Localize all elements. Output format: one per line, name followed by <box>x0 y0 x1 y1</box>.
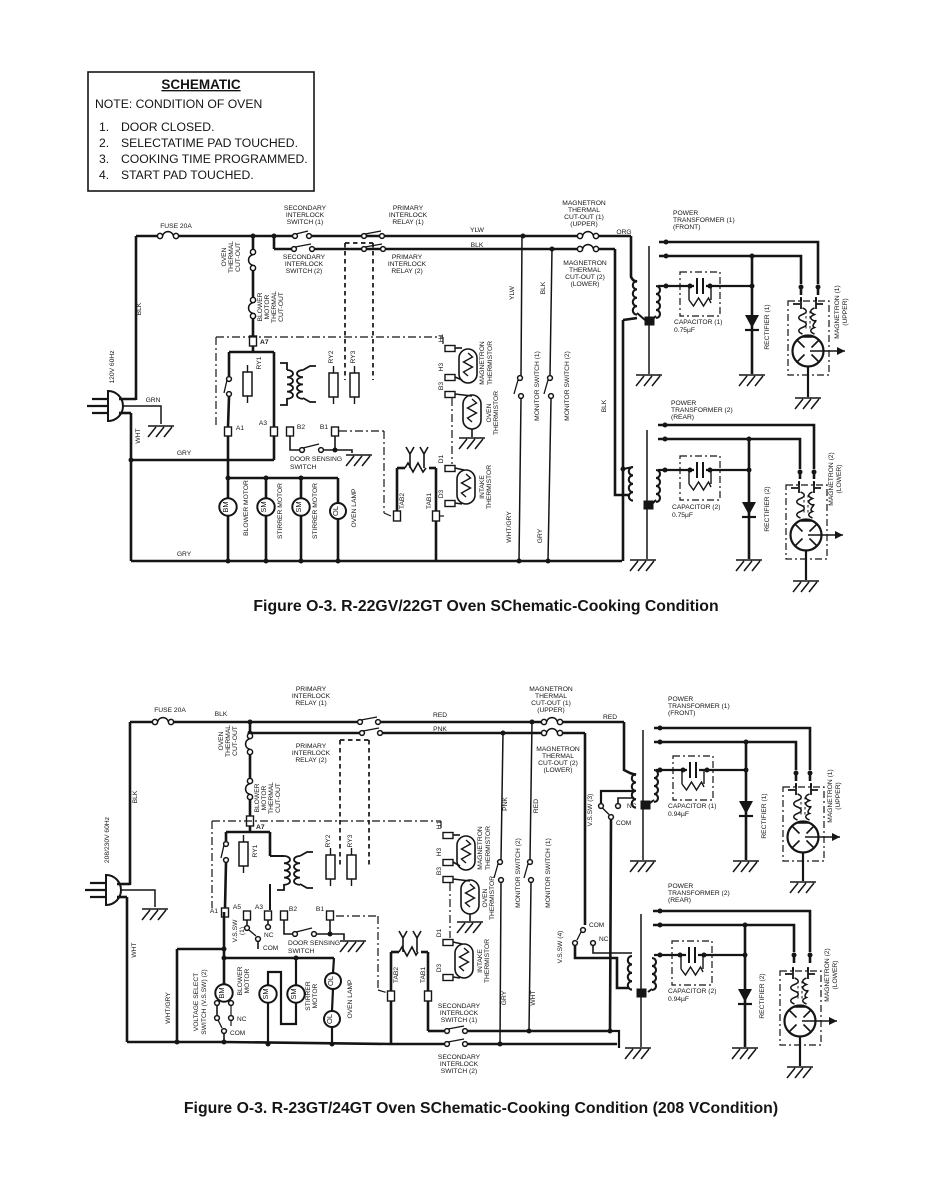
svg-text:DOOR SENSING: DOOR SENSING <box>288 940 340 947</box>
svg-text:THERMAL: THERMAL <box>271 291 278 323</box>
svg-text:SWITCH (1): SWITCH (1) <box>287 219 323 226</box>
svg-text:RED: RED <box>433 712 447 719</box>
svg-text:H3: H3 <box>438 362 445 371</box>
svg-text:BLK: BLK <box>132 790 139 803</box>
svg-text:THERMISTOR: THERMISTOR <box>484 939 491 983</box>
svg-text:H3: H3 <box>436 847 443 856</box>
svg-text:STIRRER MOTOR: STIRRER MOTOR <box>277 483 284 539</box>
svg-text:D1: D1 <box>438 454 445 463</box>
svg-text:B2: B2 <box>289 906 297 913</box>
svg-text:POWER: POWER <box>673 210 698 217</box>
svg-text:THERMAL: THERMAL <box>535 693 567 700</box>
svg-text:YLW: YLW <box>509 285 516 300</box>
svg-text:CUT-OUT (2): CUT-OUT (2) <box>565 274 605 281</box>
svg-text:SECONDARY: SECONDARY <box>284 205 327 212</box>
svg-text:YLW: YLW <box>470 227 485 234</box>
svg-text:CUT-OUT (1): CUT-OUT (1) <box>564 214 604 221</box>
svg-text:MAGNETRON: MAGNETRON <box>562 200 606 207</box>
svg-text:COM: COM <box>230 1030 245 1037</box>
svg-text:THERMAL: THERMAL <box>225 725 232 757</box>
svg-text:GRN: GRN <box>146 397 161 404</box>
svg-text:D3: D3 <box>436 963 443 972</box>
svg-text:THERMISTOR: THERMISTOR <box>485 826 492 870</box>
svg-text:(FRONT): (FRONT) <box>668 710 696 717</box>
svg-text:(LOWER): (LOWER) <box>571 281 600 288</box>
svg-text:SWITCH (2): SWITCH (2) <box>286 268 322 275</box>
svg-text:INTERLOCK: INTERLOCK <box>292 693 331 700</box>
svg-text:WHT: WHT <box>530 990 537 1005</box>
svg-text:MAGNETRON (2): MAGNETRON (2) <box>824 948 831 1002</box>
svg-text:SM: SM <box>294 501 303 512</box>
svg-text:PRIMARY: PRIMARY <box>393 205 424 212</box>
svg-text:BM: BM <box>217 987 226 998</box>
svg-text:0.75µF: 0.75µF <box>672 512 693 519</box>
svg-text:FUSE 20A: FUSE 20A <box>160 223 192 230</box>
svg-text:RY2: RY2 <box>328 350 335 363</box>
svg-text:GRY: GRY <box>177 450 192 457</box>
svg-text:B3: B3 <box>438 382 445 390</box>
svg-text:NC: NC <box>264 932 274 939</box>
svg-text:BLOWER MOTOR: BLOWER MOTOR <box>243 480 250 536</box>
svg-text:RECTIFIER (2): RECTIFIER (2) <box>764 486 771 531</box>
svg-text:GRY: GRY <box>177 551 192 558</box>
svg-text:(UPPER): (UPPER) <box>570 221 598 228</box>
svg-text:THERMAL: THERMAL <box>542 753 574 760</box>
svg-text:(1): (1) <box>239 927 246 935</box>
svg-text:120V 60Hz: 120V 60Hz <box>109 350 116 384</box>
svg-text:BLK: BLK <box>601 399 608 412</box>
svg-text:OVEN: OVEN <box>218 731 225 750</box>
svg-text:CUT-OUT: CUT-OUT <box>278 292 285 322</box>
svg-text:RED: RED <box>533 799 540 813</box>
svg-text:MOTOR: MOTOR <box>264 294 271 319</box>
svg-text:SWITCH (1): SWITCH (1) <box>441 1017 477 1024</box>
svg-text:2.: 2. <box>99 136 109 150</box>
svg-text:A5: A5 <box>233 904 241 911</box>
svg-text:SECONDARY: SECONDARY <box>283 254 326 261</box>
svg-text:THERMAL: THERMAL <box>268 782 275 814</box>
svg-text:(UPPER): (UPPER) <box>835 782 842 810</box>
svg-text:RY1: RY1 <box>256 356 263 369</box>
svg-text:THERMAL: THERMAL <box>569 267 601 274</box>
svg-text:INTERLOCK: INTERLOCK <box>389 212 428 219</box>
svg-text:NOTE: CONDITION OF OVEN: NOTE: CONDITION OF OVEN <box>95 97 262 111</box>
svg-text:SM: SM <box>259 501 268 512</box>
svg-text:A1: A1 <box>210 908 218 915</box>
svg-text:CUT-OUT: CUT-OUT <box>232 726 239 756</box>
svg-text:SM: SM <box>289 988 298 999</box>
svg-text:RECTIFIER (1): RECTIFIER (1) <box>761 793 768 838</box>
svg-text:OL: OL <box>325 1014 334 1024</box>
svg-text:THERMISTOR: THERMISTOR <box>486 465 493 509</box>
svg-text:OL: OL <box>331 506 340 516</box>
svg-text:THERMAL: THERMAL <box>228 241 235 273</box>
svg-text:STIRRER MOTOR: STIRRER MOTOR <box>312 483 319 539</box>
svg-text:MOTOR: MOTOR <box>312 983 319 1008</box>
svg-text:MOTOR: MOTOR <box>244 968 251 993</box>
svg-text:(UPPER): (UPPER) <box>842 298 849 326</box>
svg-text:TAB1: TAB1 <box>426 493 433 510</box>
svg-text:CUT-OUT (2): CUT-OUT (2) <box>538 760 578 767</box>
svg-text:MONITOR SWITCH (2): MONITOR SWITCH (2) <box>515 838 522 908</box>
svg-text:COM: COM <box>616 820 631 827</box>
svg-text:START PAD TOUCHED.: START PAD TOUCHED. <box>121 168 254 182</box>
svg-text:THERMAL: THERMAL <box>568 207 600 214</box>
svg-text:RED: RED <box>603 714 617 721</box>
svg-text:(REAR): (REAR) <box>668 897 691 904</box>
svg-text:COM: COM <box>589 922 604 929</box>
svg-text:SWITCH: SWITCH <box>288 948 315 955</box>
svg-text:INTERLOCK: INTERLOCK <box>286 212 325 219</box>
svg-text:PRIMARY: PRIMARY <box>392 254 423 261</box>
svg-text:D3: D3 <box>438 489 445 498</box>
svg-text:NC: NC <box>237 1016 247 1023</box>
svg-text:THERMISTOR: THERMISTOR <box>489 876 496 920</box>
svg-text:MAGNETRON (1): MAGNETRON (1) <box>834 285 841 339</box>
svg-text:B3: B3 <box>436 867 443 875</box>
svg-text:TAB1: TAB1 <box>420 967 427 984</box>
svg-text:Figure O-3. R-22GV/22GT Oven: Figure O-3. R-22GV/22GT Oven SChematic-C… <box>253 598 718 615</box>
svg-text:V.S.SW (3): V.S.SW (3) <box>587 794 594 827</box>
svg-text:INTAKE: INTAKE <box>479 475 486 499</box>
svg-text:WHT: WHT <box>135 428 142 443</box>
svg-text:BLOWER: BLOWER <box>257 292 264 321</box>
svg-text:BLK: BLK <box>540 281 547 294</box>
svg-text:4.: 4. <box>99 168 109 182</box>
svg-text:TRANSFORMER (2): TRANSFORMER (2) <box>671 407 733 414</box>
svg-text:B1: B1 <box>320 424 328 431</box>
svg-text:RECTIFIER (2): RECTIFIER (2) <box>759 973 766 1018</box>
svg-text:STIRRER: STIRRER <box>305 981 312 1011</box>
svg-text:V.S.SW: V.S.SW <box>232 919 239 942</box>
svg-text:BLK: BLK <box>136 302 143 315</box>
svg-text:PNK: PNK <box>433 726 447 733</box>
svg-text:208/230V 60Hz: 208/230V 60Hz <box>104 816 111 863</box>
svg-text:INTERLOCK: INTERLOCK <box>440 1010 479 1017</box>
svg-text:THERMISTOR: THERMISTOR <box>493 391 500 435</box>
svg-text:(LOWER): (LOWER) <box>836 465 843 494</box>
svg-text:MAGNETRON (2): MAGNETRON (2) <box>828 452 835 506</box>
svg-text:(FRONT): (FRONT) <box>673 224 701 231</box>
svg-text:MONITOR SWITCH (1): MONITOR SWITCH (1) <box>545 838 552 908</box>
svg-text:V.S.SW (4): V.S.SW (4) <box>557 931 564 964</box>
svg-text:A7: A7 <box>256 824 265 831</box>
svg-text:BLOWER: BLOWER <box>237 966 244 995</box>
svg-text:PRIMARY: PRIMARY <box>296 686 327 693</box>
svg-text:MOTOR: MOTOR <box>261 785 268 810</box>
svg-text:B2: B2 <box>297 424 305 431</box>
svg-text:COOKING TIME PROGRAMMED.: COOKING TIME PROGRAMMED. <box>121 152 308 166</box>
svg-text:INTERLOCK: INTERLOCK <box>388 261 427 268</box>
svg-text:DOOR CLOSED.: DOOR CLOSED. <box>121 120 214 134</box>
svg-text:THERMISTOR: THERMISTOR <box>487 341 494 385</box>
svg-text:FUSE 20A: FUSE 20A <box>154 707 186 714</box>
svg-text:A1: A1 <box>236 425 244 432</box>
svg-text:MAGNETRON: MAGNETRON <box>536 746 580 753</box>
svg-text:RY1: RY1 <box>252 844 259 857</box>
svg-text:INTERLOCK: INTERLOCK <box>440 1061 479 1068</box>
svg-text:0.94µF: 0.94µF <box>668 996 689 1003</box>
svg-text:(LOWER): (LOWER) <box>832 961 839 990</box>
svg-text:OVEN: OVEN <box>486 403 493 422</box>
svg-text:OVEN LAMP: OVEN LAMP <box>347 979 354 1019</box>
svg-text:BLK: BLK <box>471 242 484 249</box>
svg-text:SCHEMATIC: SCHEMATIC <box>161 77 240 92</box>
svg-text:D1: D1 <box>436 928 443 937</box>
svg-text:SELECTATIME PAD TOUCHED.: SELECTATIME PAD TOUCHED. <box>121 136 298 150</box>
svg-text:MAGNETRON: MAGNETRON <box>479 341 486 385</box>
svg-text:RY2: RY2 <box>325 834 332 847</box>
svg-text:SECONDARY: SECONDARY <box>438 1054 481 1061</box>
svg-text:RY3: RY3 <box>347 834 354 847</box>
svg-text:CAPACITOR (1): CAPACITOR (1) <box>668 803 716 810</box>
svg-text:0.94µF: 0.94µF <box>668 811 689 818</box>
svg-text:TRANSFORMER (1): TRANSFORMER (1) <box>673 217 735 224</box>
svg-text:WHT/GRY: WHT/GRY <box>506 511 513 543</box>
svg-text:INTERLOCK: INTERLOCK <box>285 261 324 268</box>
svg-text:INTAKE: INTAKE <box>477 949 484 973</box>
svg-text:MAGNETRON: MAGNETRON <box>529 686 573 693</box>
svg-text:WHT/GRY: WHT/GRY <box>165 992 172 1024</box>
svg-text:RELAY (1): RELAY (1) <box>295 700 326 707</box>
svg-text:CUT-OUT (1): CUT-OUT (1) <box>531 700 571 707</box>
svg-text:(LOWER): (LOWER) <box>544 767 573 774</box>
svg-text:WHT: WHT <box>131 942 138 957</box>
svg-text:SWITCH: SWITCH <box>290 464 317 471</box>
svg-text:MONITOR SWITCH (1): MONITOR SWITCH (1) <box>534 351 541 421</box>
svg-text:TRANSFORMER (1): TRANSFORMER (1) <box>668 703 730 710</box>
svg-text:POWER: POWER <box>671 400 696 407</box>
svg-text:GRY: GRY <box>501 990 508 1005</box>
svg-text:VOLTAGE SELECT: VOLTAGE SELECT <box>193 973 200 1031</box>
svg-text:SM: SM <box>261 988 270 999</box>
svg-text:3.: 3. <box>99 152 109 166</box>
svg-text:RECTIFIER (1): RECTIFIER (1) <box>764 304 771 349</box>
svg-text:BLK: BLK <box>215 711 228 718</box>
svg-text:(UPPER): (UPPER) <box>537 707 565 714</box>
svg-text:TAB2: TAB2 <box>399 493 406 510</box>
svg-text:MONITOR SWITCH (2): MONITOR SWITCH (2) <box>564 351 571 421</box>
svg-text:A3: A3 <box>255 904 263 911</box>
svg-text:H1: H1 <box>436 820 443 829</box>
svg-text:GRY: GRY <box>537 528 544 543</box>
svg-text:POWER: POWER <box>668 696 693 703</box>
svg-text:MAGNETRON: MAGNETRON <box>563 260 607 267</box>
svg-text:SWITCH (V.S.SW) (2): SWITCH (V.S.SW) (2) <box>201 969 208 1035</box>
svg-text:H1: H1 <box>438 333 445 342</box>
svg-text:ORG: ORG <box>616 229 631 236</box>
svg-text:CAPACITOR (2): CAPACITOR (2) <box>672 504 720 511</box>
svg-text:OL: OL <box>326 976 335 986</box>
svg-text:DOOR SENSING: DOOR SENSING <box>290 456 342 463</box>
svg-text:0.75µF: 0.75µF <box>674 327 695 334</box>
svg-text:BLOWER: BLOWER <box>254 783 261 812</box>
svg-text:A7: A7 <box>260 339 269 346</box>
svg-text:PNK: PNK <box>502 797 509 811</box>
svg-text:RY3: RY3 <box>350 350 357 363</box>
svg-text:(REAR): (REAR) <box>671 414 694 421</box>
svg-text:COM: COM <box>263 945 278 952</box>
svg-text:RELAY (2): RELAY (2) <box>391 268 422 275</box>
svg-text:SWITCH (2): SWITCH (2) <box>441 1068 477 1075</box>
svg-text:A3: A3 <box>259 420 267 427</box>
svg-text:PRIMARY: PRIMARY <box>296 743 327 750</box>
svg-text:Figure O-3. R-23GT/24GT Oven: Figure O-3. R-23GT/24GT Oven SChematic-C… <box>184 1100 778 1117</box>
svg-text:OVEN: OVEN <box>482 888 489 907</box>
svg-text:SECONDARY: SECONDARY <box>438 1003 481 1010</box>
svg-text:BM: BM <box>221 501 230 512</box>
svg-text:NC: NC <box>599 936 609 943</box>
svg-text:1.: 1. <box>99 120 109 134</box>
svg-text:CUT-OUT: CUT-OUT <box>275 783 282 813</box>
svg-text:MAGNETRON: MAGNETRON <box>477 826 484 870</box>
svg-text:RELAY (2): RELAY (2) <box>295 757 326 764</box>
svg-text:CAPACITOR (1): CAPACITOR (1) <box>674 319 722 326</box>
svg-text:OVEN LAMP: OVEN LAMP <box>351 488 358 528</box>
svg-text:INTERLOCK: INTERLOCK <box>292 750 331 757</box>
svg-text:POWER: POWER <box>668 883 693 890</box>
svg-text:TAB2: TAB2 <box>393 967 400 984</box>
svg-text:CUT-OUT: CUT-OUT <box>235 242 242 272</box>
svg-text:TRANSFORMER (2): TRANSFORMER (2) <box>668 890 730 897</box>
svg-text:RELAY (1): RELAY (1) <box>392 219 423 226</box>
svg-text:MAGNETRON (1): MAGNETRON (1) <box>827 769 834 823</box>
svg-text:OVEN: OVEN <box>221 247 228 266</box>
svg-text:CAPACITOR (2): CAPACITOR (2) <box>668 988 716 995</box>
svg-text:B1: B1 <box>316 906 324 913</box>
